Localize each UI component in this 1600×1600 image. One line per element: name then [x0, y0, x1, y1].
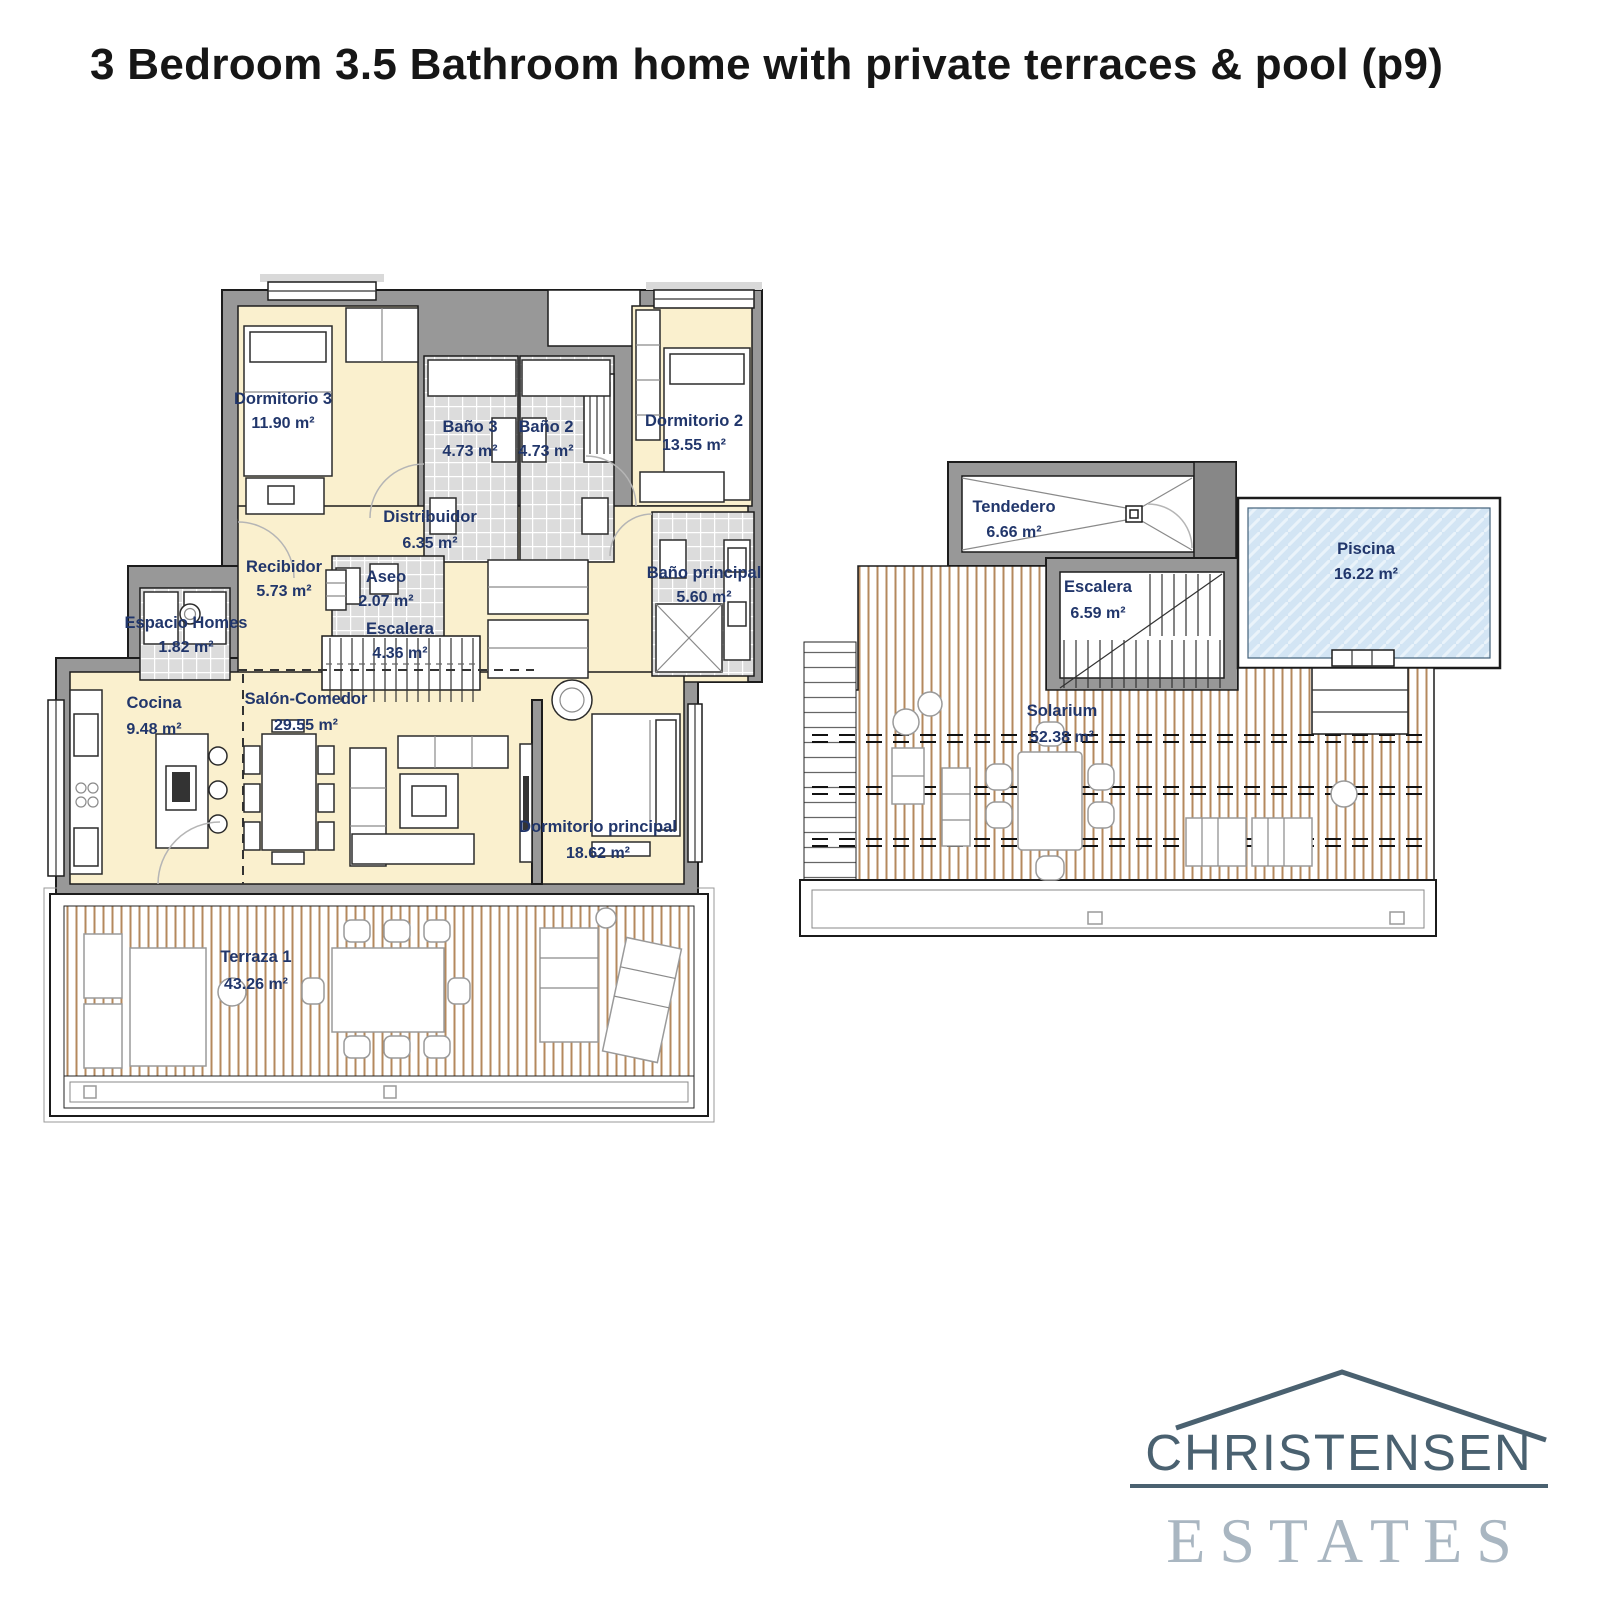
label-bano2: Baño 2	[518, 418, 573, 436]
area-terraza: 43.26 m²	[224, 976, 288, 993]
area-recibidor: 5.73 m²	[256, 583, 311, 600]
label-terraza: Terraza 1	[220, 948, 291, 966]
label-piscina: Piscina	[1337, 540, 1396, 558]
piscina	[1238, 498, 1500, 668]
floorplan-roof: Tendedero 6.66 m² Escalera 6.59 m² Pisci…	[800, 462, 1500, 936]
area-escalera: 4.36 m²	[372, 645, 427, 662]
area-bano-principal: 5.60 m²	[676, 589, 731, 606]
area-dorm-principal: 18.62 m²	[566, 845, 630, 862]
roof-bottom-band	[800, 880, 1436, 936]
label-tendedero: Tendedero	[972, 498, 1055, 516]
area-salon: 29.55 m²	[274, 717, 338, 734]
label-cocina: Cocina	[126, 694, 182, 712]
label-recibidor: Recibidor	[246, 558, 323, 576]
label-aseo: Aseo	[366, 568, 406, 586]
logo-subname: ESTATES	[1166, 1505, 1526, 1576]
terraza	[44, 888, 714, 1122]
area-bano3: 4.73 m²	[442, 443, 497, 460]
area-distribuidor: 6.35 m²	[402, 535, 457, 552]
area-aseo: 2.07 m²	[358, 593, 413, 610]
area-solarium: 52.38 m²	[1030, 729, 1094, 746]
label-escalera: Escalera	[366, 620, 435, 638]
tendedero-block	[1194, 462, 1236, 566]
area-cocina: 9.48 m²	[126, 721, 181, 738]
label-dormitorio2: Dormitorio 2	[645, 412, 743, 430]
facade-notch	[548, 290, 640, 346]
area-dormitorio3: 11.90 m²	[251, 415, 314, 432]
area-dormitorio2: 13.55 m²	[662, 437, 726, 454]
area-espacio-homes: 1.82 m²	[158, 639, 213, 656]
area-piscina: 16.22 m²	[1334, 566, 1398, 583]
area-escalera-roof: 6.59 m²	[1070, 605, 1125, 622]
floorplan-sheet: 3 Bedroom 3.5 Bathroom home with private…	[0, 0, 1600, 1600]
logo-name: CHRISTENSEN	[1145, 1424, 1533, 1481]
label-escalera-roof: Escalera	[1064, 578, 1133, 596]
label-solarium: Solarium	[1027, 702, 1098, 720]
louver-edge	[804, 642, 856, 880]
label-espacio-homes: Espacio Homes	[125, 614, 248, 632]
area-bano2: 4.73 m²	[518, 443, 573, 460]
label-bano-principal: Baño principal	[647, 564, 762, 582]
brand-logo: CHRISTENSEN ESTATES	[1130, 1372, 1548, 1576]
label-salon: Salón-Comedor	[245, 690, 368, 708]
pool-steps	[1312, 668, 1408, 734]
label-bano3: Baño 3	[442, 418, 497, 436]
floorplan-main: Dormitorio 3 11.90 m² Baño 3 4.73 m² Bañ…	[44, 274, 762, 1122]
floorplan-canvas: Dormitorio 3 11.90 m² Baño 3 4.73 m² Bañ…	[0, 0, 1600, 1600]
partition-wall	[532, 700, 542, 884]
label-dorm-principal: Dormitorio principal	[519, 818, 677, 836]
label-dormitorio3: Dormitorio 3	[234, 390, 332, 408]
label-distribuidor: Distribuidor	[383, 508, 477, 526]
area-tendedero: 6.66 m²	[986, 524, 1041, 541]
